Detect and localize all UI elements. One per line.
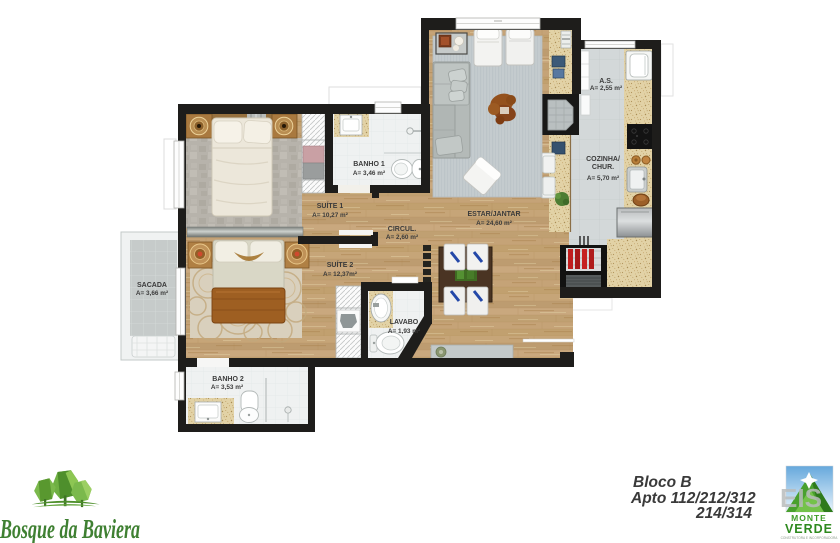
svg-text:CHUR.: CHUR. [592, 164, 614, 171]
svg-text:VERDE: VERDE [785, 522, 833, 536]
svg-text:LAVABO: LAVABO [390, 319, 419, 326]
svg-text:SACADA: SACADA [137, 282, 167, 289]
svg-text:CONSTRUTORA E INCORPORADORA: CONSTRUTORA E INCORPORADORA [781, 536, 839, 540]
svg-text:A= 24,60 m²: A= 24,60 m² [476, 220, 512, 227]
svg-text:A= 12,37m²: A= 12,37m² [323, 271, 357, 278]
svg-text:A= 2,55 m²: A= 2,55 m² [590, 85, 622, 92]
svg-text:CIRCUL.: CIRCUL. [388, 226, 416, 233]
svg-text:BANHO 1: BANHO 1 [353, 161, 385, 168]
svg-text:A= 3,66 m²: A= 3,66 m² [136, 290, 168, 297]
svg-text:A= 1,93 m²: A= 1,93 m² [388, 328, 420, 335]
svg-text:BANHO 2: BANHO 2 [212, 376, 244, 383]
svg-text:COZINHA/: COZINHA/ [586, 156, 620, 163]
svg-text:Bosque da Baviera: Bosque da Baviera [0, 514, 140, 543]
svg-text:SUÍTE 2: SUÍTE 2 [327, 260, 354, 269]
svg-text:SUÍTE 1: SUÍTE 1 [317, 201, 344, 210]
svg-text:214/314: 214/314 [695, 505, 752, 522]
svg-text:A.S.: A.S. [599, 78, 613, 85]
svg-text:A= 10,27 m²: A= 10,27 m² [312, 212, 348, 219]
svg-text:A= 2,60 m²: A= 2,60 m² [386, 234, 418, 241]
svg-text:Bloco B: Bloco B [633, 474, 692, 491]
svg-text:A= 3,53 m²: A= 3,53 m² [211, 384, 243, 391]
svg-text:ESTAR/JANTAR: ESTAR/JANTAR [467, 211, 520, 218]
svg-text:EIS: EIS [780, 483, 822, 513]
svg-text:A= 3,46 m²: A= 3,46 m² [353, 170, 385, 177]
svg-text:A= 5,70 m²: A= 5,70 m² [587, 175, 619, 182]
